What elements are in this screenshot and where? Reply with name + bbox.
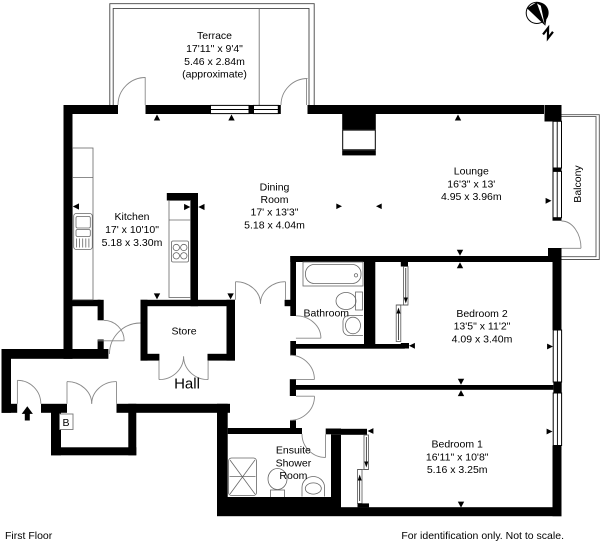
svg-text:First Floor: First Floor — [5, 530, 53, 542]
svg-text:Ensuite: Ensuite — [276, 445, 311, 457]
svg-text:Shower: Shower — [276, 457, 312, 469]
svg-text:17' x 13'3": 17' x 13'3" — [250, 207, 298, 219]
svg-text:16'3" x 13': 16'3" x 13' — [447, 178, 495, 190]
svg-text:(approximate): (approximate) — [182, 69, 247, 81]
svg-text:Balcony: Balcony — [572, 165, 584, 203]
svg-text:Bedroom 1: Bedroom 1 — [432, 439, 484, 451]
svg-text:5.16 x 3.25m: 5.16 x 3.25m — [427, 464, 488, 476]
svg-text:16'11" x 10'8": 16'11" x 10'8" — [426, 451, 489, 463]
svg-text:For identification only. Not t: For identification only. Not to scale. — [401, 530, 564, 542]
svg-text:5.46 x 2.84m: 5.46 x 2.84m — [184, 56, 245, 68]
svg-text:Bedroom 2: Bedroom 2 — [456, 308, 508, 320]
svg-text:Dining: Dining — [260, 181, 290, 193]
svg-text:5.18 x 3.30m: 5.18 x 3.30m — [102, 237, 163, 249]
svg-text:17'11" x 9'4": 17'11" x 9'4" — [186, 43, 243, 55]
svg-text:Store: Store — [171, 325, 196, 337]
svg-text:Lounge: Lounge — [454, 166, 489, 178]
svg-text:17' x 10'10": 17' x 10'10" — [105, 224, 159, 236]
svg-text:5.18 x 4.04m: 5.18 x 4.04m — [244, 219, 305, 231]
svg-text:4.95 x 3.96m: 4.95 x 3.96m — [441, 191, 502, 203]
svg-text:Bathroom: Bathroom — [304, 307, 350, 319]
svg-text:Room: Room — [260, 194, 288, 206]
svg-text:13'5" x 11'2": 13'5" x 11'2" — [454, 321, 511, 333]
svg-text:Room: Room — [279, 470, 307, 482]
svg-text:B: B — [62, 417, 69, 429]
svg-text:Kitchen: Kitchen — [114, 211, 149, 223]
svg-text:Hall: Hall — [174, 376, 200, 393]
svg-text:Terrace: Terrace — [197, 30, 232, 42]
svg-text:4.09 x 3.40m: 4.09 x 3.40m — [452, 333, 513, 345]
